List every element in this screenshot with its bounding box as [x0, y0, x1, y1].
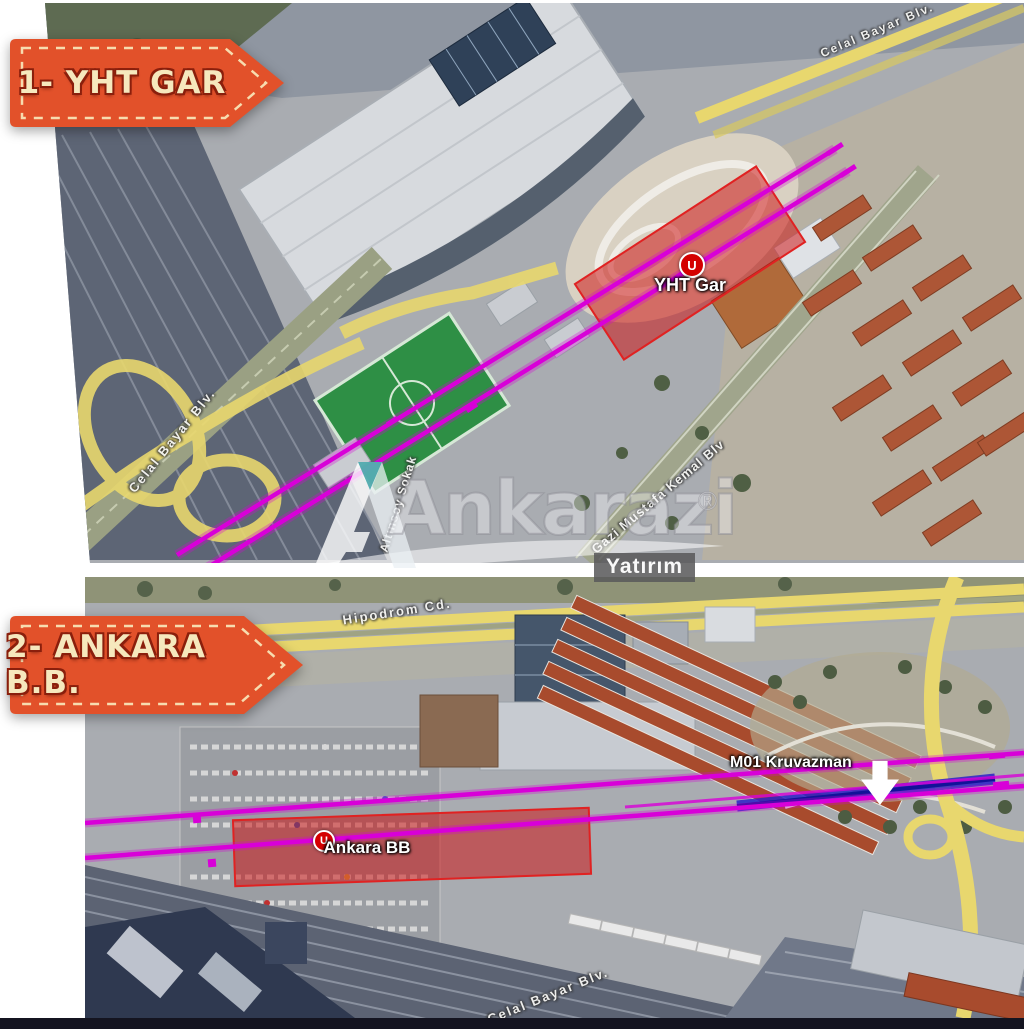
ribbon-badge-ankara-bb: 2- ANKARA B.B. — [6, 612, 308, 718]
ribbon-badge-yht-gar: 1- YHT GAR — [6, 36, 290, 130]
station-label-ankara-bb: Ankara BB — [307, 838, 427, 858]
junction-label-m01-kruvazman: M01 Kruvazman — [730, 754, 852, 772]
poster-canvas: U YHT Gar Celal Bayar Blv. Altınsoy Soka… — [0, 0, 1024, 1029]
badge-label: 2- ANKARA B.B. — [6, 612, 308, 718]
bottom-bar — [0, 1018, 1024, 1029]
badge-label: 1- YHT GAR — [6, 36, 290, 130]
station-label-yht-gar: YHT Gar — [630, 275, 750, 296]
